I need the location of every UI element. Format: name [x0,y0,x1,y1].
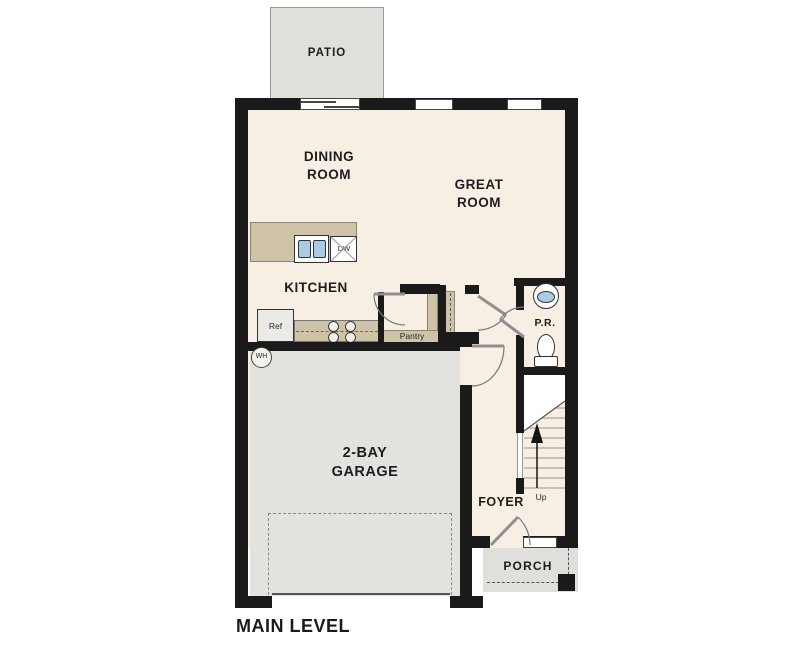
pantry-shelf-side [427,293,438,332]
wall-pr-left-upper [516,278,524,310]
wall-pantry-left [378,292,384,344]
floor-plan: PATIO DW Ref Pantry [0,0,810,648]
plan-title: MAIN LEVEL [236,616,350,637]
wall-garage-bottom-left [235,596,272,608]
window-foyer [523,537,557,548]
garage-opening-line [272,593,450,595]
great-room-label: GREAT ROOM [429,176,529,212]
toilet-tank [534,356,558,367]
pedestal-sink-basin [537,291,555,303]
window-dining [415,99,453,110]
wall-left [235,98,248,608]
range-burner-1 [328,321,339,332]
sliding-door-panel-2 [324,106,360,108]
wall-foyer-bottom-left [468,536,490,548]
refrigerator-label: Ref [257,321,294,331]
up-label: Up [528,492,554,502]
wall-garage-bottom-right [450,596,483,608]
wall-pr-bottom [522,367,566,376]
closet-rod-line [450,293,451,331]
garage-door-opening [460,347,472,385]
porch-label: PORCH [494,559,562,575]
kitchen-label: KITCHEN [258,279,374,297]
wall-pantry-top [400,284,440,294]
sink-basin-left [298,240,311,258]
porch-post [558,574,575,591]
wall-closet-top-stub [465,285,479,294]
garage-label: 2-BAY GARAGE [305,444,425,482]
sliding-door-panel-1 [300,101,336,103]
stair-rail [517,432,523,480]
sliding-door [300,98,360,110]
counter-centerline [296,331,378,332]
dishwasher-label: DW [332,244,356,253]
range-burner-2 [345,321,356,332]
sink-basin-right [313,240,326,258]
wall-stair-stub [516,478,524,494]
pantry-label: Pantry [386,331,438,341]
wall-stair-left [516,375,524,433]
porch-dashed-front [487,582,569,583]
wall-right [565,98,578,548]
powder-room-label: P.R. [528,317,562,331]
dining-room-label: DINING ROOM [279,148,379,184]
wall-closet-bottom [438,332,479,344]
foyer-label: FOYER [473,494,529,511]
water-heater-label: WH [251,353,272,360]
patio-label: PATIO [270,46,384,61]
window-great-room [507,99,542,110]
garage-door-path [268,513,452,595]
